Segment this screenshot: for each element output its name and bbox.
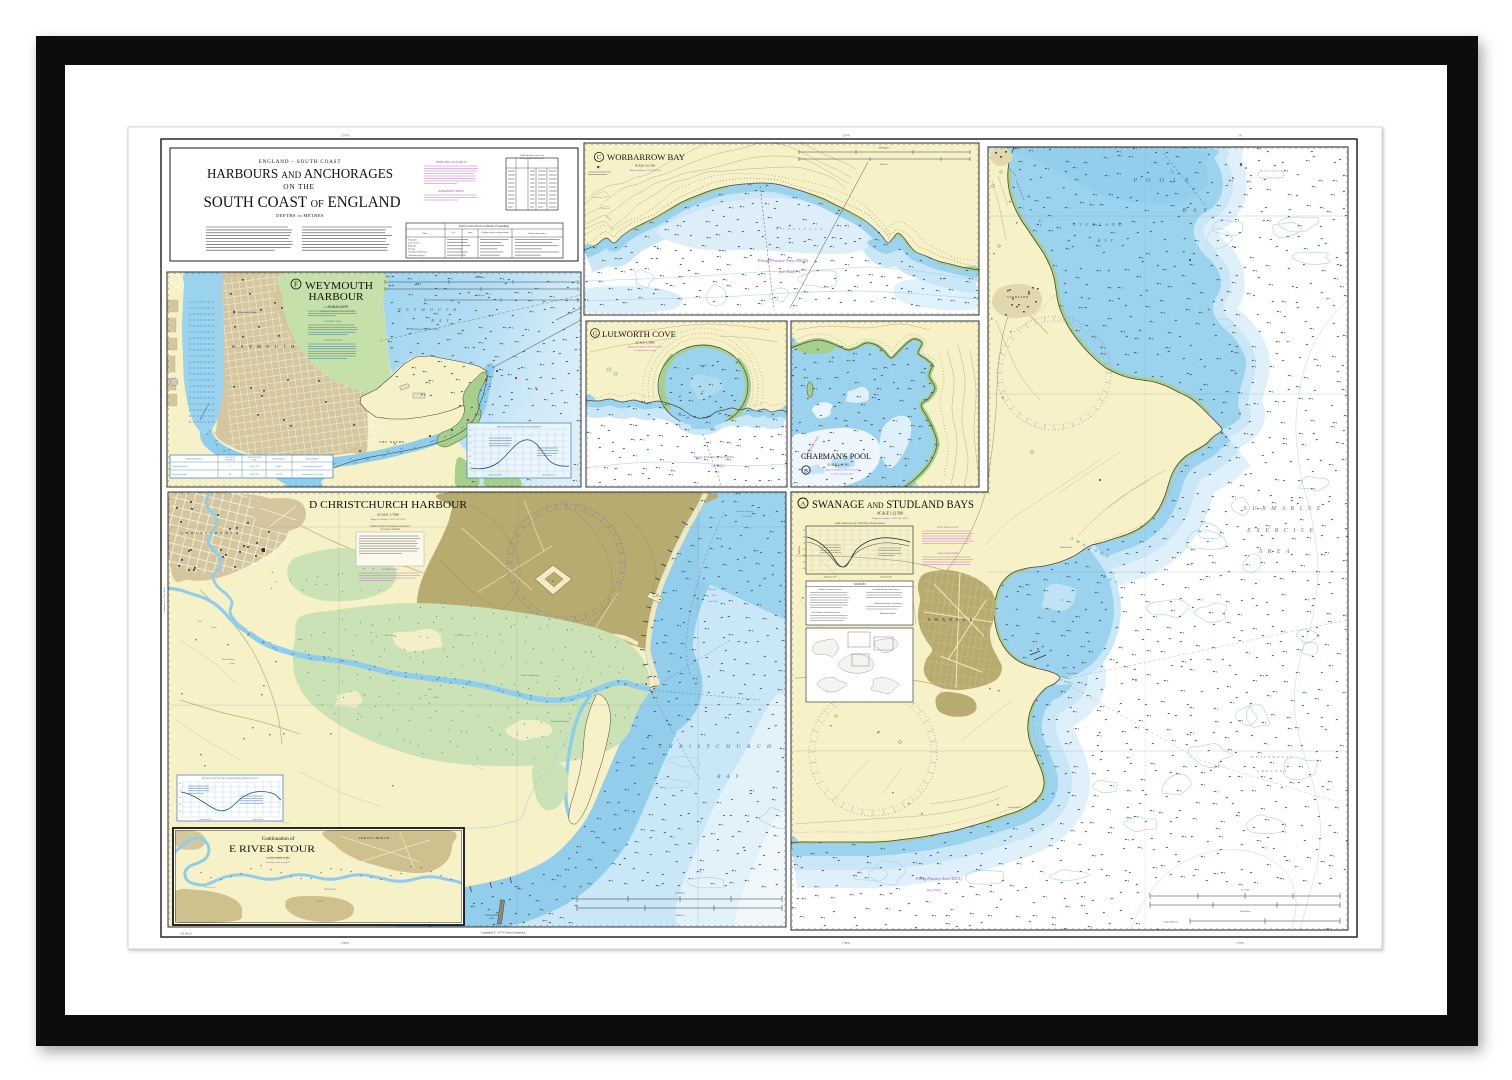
- svg-text:The: The: [428, 688, 432, 691]
- svg-text:WEB ADDRESS: WEB ADDRESS: [306, 458, 319, 461]
- svg-text:Magnetic Variation 1°48'W 2013: Magnetic Variation 1°48'W 2013 (9'E): [872, 517, 908, 520]
- svg-text:0.0: 0.0: [803, 568, 805, 570]
- svg-text:Hours after HW: Hours after HW: [542, 474, 554, 477]
- svg-text:Wick Hams: Wick Hams: [385, 635, 395, 637]
- svg-text:2.4: 2.4: [803, 530, 805, 532]
- svg-text:Lulworth: Lulworth: [678, 415, 685, 417]
- svg-text:British Government Surveys: British Government Surveys: [819, 589, 842, 591]
- svg-text:HENGISTBURY: HENGISTBURY: [485, 915, 499, 917]
- svg-text:2.0: 2.0: [469, 436, 471, 438]
- svg-text:+44 (0) 1305: +44 (0) 1305: [249, 465, 259, 468]
- svg-text:Place: Place: [422, 232, 427, 235]
- svg-text:1.4: 1.4: [179, 790, 181, 792]
- svg-text:Heights in metres above datum: Heights in metres above datum: [481, 231, 509, 234]
- svg-text:2°46'W: 2°46'W: [341, 942, 349, 945]
- svg-text:Small Craft Moorings: Small Craft Moorings: [521, 674, 539, 677]
- svg-text:VISUAL REPORTING: VISUAL REPORTING: [937, 552, 959, 555]
- svg-text:Firing Practice Area (D031): Firing Practice Area (D031): [915, 876, 963, 881]
- svg-text:SCALE 1:12 500: SCALE 1:12 500: [635, 164, 656, 168]
- svg-text:CHANNELS: CHANNELS: [225, 459, 235, 462]
- svg-text:80: 80: [229, 474, 231, 476]
- svg-text:FIRING PRACTICE AREAS: FIRING PRACTICE AREAS: [436, 161, 467, 164]
- svg-text:A: A: [801, 501, 806, 508]
- svg-text:2.0: 2.0: [803, 536, 805, 538]
- svg-text:WORBARROW BAY: WORBARROW BAY: [607, 153, 685, 162]
- svg-text:Magnetic Variation 1°50'W 2013: Magnetic Variation 1°50'W 2013 (9'E): [628, 346, 662, 349]
- svg-text:D CHRISTCHURCH HARBOUR: D CHRISTCHURCH HARBOUR: [309, 499, 468, 511]
- svg-text:400 Metres: 400 Metres: [475, 277, 485, 279]
- svg-text:SUBMARINE CABLES: SUBMARINE CABLES: [438, 190, 464, 193]
- svg-text:SWANAGE AND STUDLAND BAYS: SWANAGE AND STUDLAND BAYS: [812, 497, 974, 511]
- svg-text:RIVER STOUR: RIVER STOUR: [323, 889, 336, 891]
- svg-text:0.4: 0.4: [469, 463, 471, 465]
- svg-text:S T U D L A N D: S T U D L A N D: [1073, 222, 1123, 227]
- svg-text:Longitude 2°. 45' W from Green: Longitude 2°. 45' W from Greenwich: [481, 931, 526, 935]
- svg-text:Feet 1000: Feet 1000: [1241, 890, 1249, 892]
- svg-text:Magnetic Variation 1°50'W 2013: Magnetic Variation 1°50'W 2013 (9'E): [825, 469, 859, 472]
- svg-text:on the same scale: on the same scale: [266, 856, 290, 860]
- svg-text:Christchurch (Quay): Christchurch (Quay): [408, 254, 425, 257]
- svg-text:ENGLAND – SOUTH COAST: ENGLAND – SOUTH COAST: [259, 159, 342, 165]
- svg-text:Continuation of River Stour: Continuation of River Stour: [163, 587, 166, 613]
- svg-text:ON THE: ON THE: [283, 182, 315, 191]
- svg-text:TELEPHONE No.: TELEPHONE No.: [272, 459, 286, 461]
- svg-text:T u c k t o n: T u c k t o n: [205, 886, 217, 889]
- svg-text:+44 (0) 1305: +44 (0) 1305: [249, 473, 259, 476]
- svg-text:For finer scales see plan: For finer scales see plan: [831, 473, 853, 476]
- svg-text:Flats: Flats: [433, 696, 439, 699]
- svg-text:Lat: Lat: [452, 232, 455, 234]
- svg-text:12: 12: [229, 466, 231, 468]
- svg-text:(see Note): (see Note): [742, 515, 752, 518]
- svg-text:Ballard Point: Ballard Point: [1060, 547, 1072, 549]
- svg-text:B A Y: B A Y: [431, 318, 450, 323]
- svg-text:1.0: 1.0: [179, 797, 181, 799]
- svg-text:HARBOUR/MARINA: HARBOUR/MARINA: [185, 458, 203, 461]
- svg-text:B: B: [804, 468, 808, 474]
- svg-text:Firing Practice Area (D026): Firing Practice Area (D026): [693, 455, 735, 459]
- svg-text:S m a l l C r a f t: S m a l l C r a f t: [454, 634, 470, 637]
- svg-text:Swanage: Swanage: [408, 248, 415, 251]
- svg-text:0.6: 0.6: [179, 804, 181, 806]
- svg-text:C: C: [597, 154, 601, 161]
- svg-text:0.0: 0.0: [469, 469, 471, 471]
- svg-text:CHANGING DEPTHS: CHANGING DEPTHS: [380, 528, 401, 531]
- svg-text:Poole Harbour Commissioners Su: Poole Harbour Commissioners Surveys: [812, 612, 841, 614]
- svg-text:2.4: 2.4: [469, 430, 471, 432]
- svg-text:CHRISTCHURCH HARBOUR ENTRANCE: CHRISTCHURCH HARBOUR ENTRANCE: [370, 525, 411, 528]
- svg-text:0.8: 0.8: [469, 456, 471, 458]
- svg-text:Weymouth Harbour: Weymouth Harbour: [172, 466, 188, 468]
- svg-text:GB 5601.8: GB 5601.8: [180, 933, 192, 936]
- svg-text:Peveril Point: Peveril Point: [1066, 673, 1078, 675]
- svg-text:STUDLAND: STUDLAND: [1007, 295, 1029, 299]
- svg-text:767576: 767576: [276, 474, 282, 476]
- svg-text:BERTHING AREA: BERTHING AREA: [324, 320, 342, 323]
- svg-text:S W A N A G E: S W A N A G E: [928, 617, 974, 622]
- svg-text:S U B M A R I N E: S U B M A R I N E: [1244, 506, 1323, 512]
- svg-text:C H R I S T C H U R C H: C H R I S T C H U R C H: [659, 744, 774, 750]
- svg-text:SCALE 1:5000: SCALE 1:5000: [635, 341, 655, 345]
- svg-text:CHRISTCHURCH: CHRISTCHURCH: [359, 836, 390, 840]
- svg-text:W E Y M O U T H: W E Y M O U T H: [232, 344, 297, 349]
- svg-text:CHAPMAN'S POOL: CHAPMAN'S POOL: [801, 452, 871, 461]
- svg-text:0.2: 0.2: [179, 811, 181, 813]
- svg-text:Lulworth Cove: Lulworth Cove: [408, 242, 420, 244]
- svg-text:W E Y M O U T H: W E Y M O U T H: [398, 307, 459, 312]
- svg-text:(see Note): (see Note): [927, 888, 942, 892]
- svg-text:3000 Feet: 3000 Feet: [880, 164, 889, 166]
- svg-text:E X E R C I S E: E X E R C I S E: [1246, 528, 1315, 534]
- svg-text:1.6: 1.6: [803, 543, 805, 545]
- svg-text:Area: Area: [711, 594, 718, 597]
- svg-text:Magnetic Variation 1°50'W 2013: Magnetic Variation 1°50'W 2013 (9'E): [320, 310, 356, 313]
- svg-text:SCALE 1:12 500: SCALE 1:12 500: [877, 512, 903, 516]
- svg-text:Weymouth Marina: Weymouth Marina: [238, 311, 258, 314]
- svg-text:DEPTHS IN METRES: DEPTHS IN METRES: [276, 213, 324, 218]
- svg-text:SOUTH COAST OF ENGLAND: SOUTH COAST OF ENGLAND: [204, 194, 401, 211]
- svg-text:SCALE 1:7500: SCALE 1:7500: [377, 513, 399, 517]
- svg-text:W H I T E H O U S E: W H I T E H O U S E: [1251, 755, 1293, 759]
- svg-text:Harbour Entrance: Harbour Entrance: [735, 510, 753, 513]
- svg-text:Course: Course: [211, 627, 217, 629]
- svg-text:Magnetic Variation 1°46'W 2013: Magnetic Variation 1°46'W 2013 (9'E): [370, 518, 406, 521]
- svg-text:Nautical Mile 0.5: Nautical Mile 0.5: [1163, 922, 1178, 924]
- svg-text:W i c k: W i c k: [317, 901, 324, 903]
- svg-text:B A Y: B A Y: [1183, 208, 1210, 214]
- svg-text:(see Note): (see Note): [779, 269, 796, 274]
- svg-text:Centre: Centre: [229, 663, 234, 665]
- svg-text:HEAD: HEAD: [489, 917, 495, 920]
- svg-text:HIGH SPEED CRAFT: HIGH SPEED CRAFT: [937, 526, 959, 529]
- svg-text:838423: 838423: [276, 466, 282, 468]
- svg-text:Hours before LW: Hours before LW: [199, 818, 211, 821]
- svg-text:Mupe Bay: Mupe Bay: [408, 246, 416, 248]
- svg-text:For finer scales see plan: For finer scales see plan: [634, 349, 656, 352]
- svg-text:1°46'W: 1°46'W: [842, 942, 850, 945]
- svg-text:2°24'W: 2°24'W: [842, 135, 850, 138]
- svg-text:6.2: 6.2: [702, 391, 705, 393]
- svg-text:Bathing: Bathing: [708, 588, 717, 591]
- svg-text:1.2: 1.2: [803, 549, 805, 551]
- svg-text:Christchurch Borough Council S: Christchurch Borough Council Surveys: [874, 602, 903, 605]
- svg-text:1°55'W: 1°55'W: [1236, 942, 1244, 945]
- svg-text:2000 Feet: 2000 Feet: [676, 915, 685, 917]
- svg-text:1.6: 1.6: [469, 443, 471, 445]
- svg-text:A R E A: A R E A: [1258, 549, 1292, 555]
- svg-text:METRES: METRES: [799, 546, 801, 554]
- svg-text:(see Note): (see Note): [708, 600, 718, 603]
- svg-text:SCALE 1:5000: SCALE 1:5000: [328, 305, 349, 309]
- svg-text:SOURCES: SOURCES: [854, 583, 866, 586]
- svg-text:B A Y: B A Y: [1098, 238, 1115, 243]
- svg-text:Tidal Levels referred to Datum: Tidal Levels referred to Datum of Soundi…: [459, 225, 509, 228]
- svg-text:E RIVER STOUR: E RIVER STOUR: [229, 844, 316, 855]
- svg-text:58': 58': [1238, 135, 1242, 138]
- svg-text:Christchurch (Entrance): Christchurch (Entrance): [408, 251, 428, 254]
- svg-text:RISE AND FALL OF THE TIDE IN C: RISE AND FALL OF THE TIDE IN CHRISTCHURC…: [202, 777, 258, 780]
- svg-text:BATHING AREA: BATHING AREA: [382, 568, 398, 571]
- svg-text:G R O U N D S: G R O U N D S: [1257, 769, 1287, 773]
- svg-text:1.2: 1.2: [469, 449, 471, 451]
- svg-text:THE NOTHE: THE NOTHE: [379, 440, 405, 444]
- svg-text:1000 Metres: 1000 Metres: [879, 148, 890, 150]
- svg-text:1200 Feet: 1200 Feet: [476, 295, 485, 297]
- svg-text:0.8: 0.8: [803, 555, 805, 557]
- svg-text:SCALE 1:12 500: SCALE 1:12 500: [827, 463, 849, 467]
- svg-text:0.4: 0.4: [803, 562, 805, 564]
- svg-text:Firing Practice Area (D026): Firing Practice Area (D026): [757, 258, 809, 263]
- svg-text:W O R B A R R O W: W O R B A R R O W: [776, 227, 824, 231]
- svg-text:For Stour scales see plan D: For Stour scales see plan D: [266, 862, 290, 864]
- svg-text:Hours before LW: Hours before LW: [824, 576, 837, 579]
- svg-text:G: G: [593, 331, 598, 337]
- svg-text:B A Y: B A Y: [717, 774, 741, 780]
- svg-text:Hours after LW: Hours after LW: [880, 576, 892, 579]
- svg-text:Continuation of: Continuation of: [262, 835, 295, 842]
- svg-text:1.8: 1.8: [179, 783, 181, 785]
- svg-text:www.weymouth-harbour.co.uk: www.weymouth-harbour.co.uk: [302, 466, 322, 468]
- svg-text:2°27'W: 2°27'W: [341, 135, 349, 138]
- svg-text:Small Craft Moorings: Small Craft Moorings: [551, 720, 569, 723]
- svg-text:Weymouth Marina: Weymouth Marina: [172, 474, 187, 476]
- svg-text:Marsh Training: Marsh Training: [222, 658, 234, 661]
- svg-text:RISE AND FALL OF THE TIDE AT W: RISE AND FALL OF THE TIDE AT WEYMOUTH: [497, 426, 541, 429]
- svg-text:Weymouth: Weymouth: [408, 239, 417, 241]
- svg-text:Hours after LW: Hours after LW: [253, 818, 264, 821]
- svg-text:1000 Metres: 1000 Metres: [1240, 911, 1251, 913]
- svg-text:HW at PORTSMOUTH: HW at PORTSMOUTH: [521, 157, 544, 160]
- svg-text:Datum and remarks: Datum and remarks: [528, 233, 545, 235]
- svg-text:F: F: [294, 281, 298, 289]
- svg-text:LULWORTH COVE: LULWORTH COVE: [602, 329, 676, 339]
- svg-text:Weymouth Borough Council Surve: Weymouth Borough Council Surveys: [873, 588, 900, 591]
- svg-text:RISE AND FALL OF THE TIDE AT S: RISE AND FALL OF THE TIDE AT SWANAGE: [835, 522, 885, 525]
- svg-text:Golf: Golf: [198, 620, 202, 623]
- svg-text:Durlston Head: Durlston Head: [1008, 807, 1022, 809]
- svg-text:A: A: [552, 580, 554, 583]
- svg-text:P O O L E: P O O L E: [1132, 177, 1192, 184]
- svg-text:Hours before HW: Hours before HW: [489, 474, 502, 477]
- svg-text:FLASHING LIGHT: FLASHING LIGHT: [324, 339, 343, 342]
- svg-text:Maintained Depths: Maintained Depths: [880, 613, 895, 615]
- svg-text:HARBOUR: HARBOUR: [309, 291, 365, 303]
- svg-text:500 Metres: 500 Metres: [675, 893, 685, 895]
- svg-text:Magnetic Variation 1°50'W 2013: Magnetic Variation 1°50'W 2013 (9'E): [630, 169, 661, 172]
